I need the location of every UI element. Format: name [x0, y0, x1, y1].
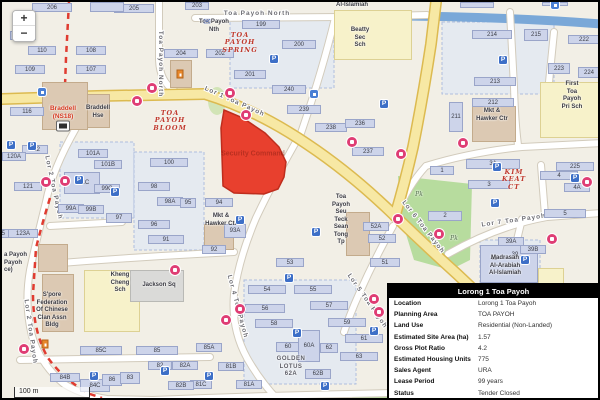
parking-icon[interactable]: P — [380, 100, 388, 108]
estate-label: KIM KEAT CT — [502, 169, 526, 191]
building-53: 53 — [276, 258, 304, 267]
row-label: Planning Area — [389, 311, 478, 318]
parking-icon[interactable]: P — [491, 199, 499, 207]
building-94: 94 — [205, 198, 233, 207]
info-panel-rows: LocationLorong 1 Toa PayohPlanning AreaT… — [389, 298, 598, 399]
bus-stop-icon[interactable] — [225, 88, 235, 98]
parking-icon[interactable]: P — [28, 142, 36, 150]
building-58: 58 — [255, 319, 293, 328]
building-52A: 52A — [363, 222, 389, 231]
building-212: 212 — [472, 98, 514, 107]
building-61: 61 — [345, 334, 383, 343]
building-100: 100 — [150, 158, 188, 167]
scale-bar: 100 m — [14, 387, 90, 398]
poi-marker-icon[interactable] — [310, 90, 318, 98]
poi-label: Al-Islamiah — [336, 2, 368, 10]
building-60: 60 — [276, 342, 300, 352]
building-236: 236 — [345, 119, 375, 128]
building-52: 52 — [368, 234, 396, 243]
building-1: 1 — [430, 166, 454, 175]
building-93A: 93A — [224, 224, 246, 238]
info-row: LocationLorong 1 Toa Payoh — [389, 298, 598, 309]
info-row: Estimated Housing Units775 — [389, 354, 598, 365]
building-98: 98 — [138, 182, 170, 191]
map-block-school — [540, 82, 600, 138]
map-block-school — [334, 10, 412, 60]
parking-icon[interactable]: P — [370, 327, 378, 335]
building-109: 109 — [15, 65, 45, 74]
row-label: Estimated Site Area (ha) — [389, 334, 478, 341]
building-240: 240 — [272, 85, 306, 94]
building-206: 206 — [32, 3, 72, 12]
parking-icon[interactable]: P — [293, 329, 301, 337]
row-label: Estimated Housing Units — [389, 356, 478, 363]
info-row: Gross Plot Ratio4.2 — [389, 343, 598, 354]
row-value: Lorong 1 Toa Payoh — [478, 300, 536, 307]
row-label: Lease Period — [389, 378, 478, 385]
row-value: Residential (Non-Landed) — [478, 322, 552, 329]
building-101A: 101A — [78, 149, 108, 158]
building-62: 62 — [320, 343, 338, 353]
building-82B: 82B — [168, 381, 194, 390]
poi-label: Pk — [415, 191, 423, 199]
parking-icon[interactable]: P — [499, 56, 507, 64]
row-value: 1.57 — [478, 334, 491, 341]
building-92: 92 — [202, 245, 226, 254]
building-110: 110 — [28, 46, 56, 55]
building-224: 224 — [578, 67, 600, 78]
map-canvas[interactable]: Toa Payoh NorthToa Payoh NorthLor 1 Toa … — [0, 0, 600, 400]
row-label: Location — [389, 300, 478, 307]
parking-icon[interactable]: P — [90, 372, 98, 380]
bus-stop-icon[interactable] — [235, 304, 245, 314]
building-120A: 120A — [2, 152, 26, 161]
building-51: 51 — [370, 258, 400, 267]
bus-stop-icon[interactable] — [547, 234, 557, 244]
bus-stop-icon[interactable] — [41, 177, 51, 187]
row-label: Gross Plot Ratio — [389, 345, 478, 352]
bus-stop-icon[interactable] — [241, 110, 251, 120]
parking-icon[interactable]: P — [521, 256, 529, 264]
building-204: 204 — [164, 49, 198, 58]
parking-icon[interactable]: P — [321, 382, 329, 390]
bus-stop-icon[interactable] — [19, 344, 29, 354]
building-97: 97 — [106, 213, 132, 223]
building-108: 108 — [76, 46, 106, 55]
info-panel-title: Lorong 1 Toa Payoh — [389, 285, 598, 298]
bus-stop-icon[interactable] — [396, 149, 406, 159]
building-123A: 123A — [8, 229, 38, 238]
parking-icon[interactable]: P — [270, 55, 278, 63]
building-199: 199 — [242, 20, 280, 29]
building-95: 95 — [180, 198, 196, 208]
building — [90, 2, 124, 12]
row-value: URA — [478, 367, 492, 374]
zoom-control: + − — [12, 10, 36, 42]
building-85: 85 — [136, 346, 178, 355]
row-label: Sales Agent — [389, 367, 478, 374]
building-59: 59 — [328, 318, 366, 327]
scale-label: 100 m — [19, 388, 38, 395]
building-39B: 39B — [520, 245, 546, 254]
building-91: 91 — [148, 235, 184, 244]
row-value: 4.2 — [478, 345, 487, 352]
building-84B: 84B — [50, 373, 80, 382]
building-56: 56 — [245, 304, 285, 313]
parking-icon[interactable]: P — [571, 174, 579, 182]
post-office-icon: ✉ — [203, 17, 211, 28]
row-value: 99 years — [478, 378, 503, 385]
row-value: Tender Closed — [478, 390, 520, 397]
info-row: StatusTender Closed — [389, 388, 598, 399]
map-block-civic — [346, 212, 370, 256]
building-99B: 99B — [78, 205, 104, 214]
building-200: 200 — [282, 40, 316, 49]
row-value: 775 — [478, 356, 489, 363]
bus-stop-icon[interactable] — [347, 137, 357, 147]
building-2: 2 — [428, 211, 462, 221]
bus-stop-icon[interactable] — [147, 83, 157, 93]
building-63: 63 — [340, 352, 378, 361]
info-row: Planning AreaTOA PAYOH — [389, 309, 598, 320]
building-214: 214 — [472, 30, 512, 39]
building-62B: 62B — [305, 369, 331, 379]
building-223: 223 — [548, 63, 570, 74]
building — [460, 2, 494, 8]
info-panel: Lorong 1 Toa Payoh LocationLorong 1 Toa … — [387, 283, 600, 400]
building-96: 96 — [138, 220, 170, 229]
map-block-civic — [472, 106, 516, 142]
poi-label: Pk — [450, 235, 458, 243]
mrt-station-icon[interactable] — [56, 121, 70, 132]
building-85C: 85C — [80, 346, 122, 355]
building-116: 116 — [10, 107, 44, 116]
info-row: Lease Period99 years — [389, 376, 598, 387]
building-82A: 82A — [172, 361, 198, 370]
building-55: 55 — [294, 285, 332, 294]
bus-stop-icon[interactable] — [434, 229, 444, 239]
zoom-out-button[interactable]: − — [13, 26, 35, 41]
parcel-label: Security Command — [221, 151, 285, 158]
parking-icon[interactable]: P — [161, 367, 169, 375]
building-121: 121 — [14, 182, 42, 191]
parking-icon[interactable]: P — [285, 274, 293, 282]
bus-stop-icon[interactable] — [458, 138, 468, 148]
temple-icon — [177, 70, 184, 79]
bus-stop-icon[interactable] — [374, 307, 384, 317]
building-81A: 81A — [236, 380, 262, 389]
poi-marker-icon[interactable] — [38, 88, 46, 96]
bus-stop-icon[interactable] — [60, 176, 70, 186]
parking-icon[interactable]: P — [205, 372, 213, 380]
building-211: 211 — [449, 102, 463, 132]
bus-stop-icon[interactable] — [582, 177, 592, 187]
building-125: 125 — [0, 229, 9, 238]
poi-marker-icon[interactable] — [551, 1, 559, 9]
info-row: Sales AgentURA — [389, 365, 598, 376]
building-57: 57 — [310, 301, 348, 310]
parking-icon[interactable]: P — [75, 176, 83, 184]
map-block-civic — [38, 244, 68, 272]
info-row: Estimated Site Area (ha)1.57 — [389, 332, 598, 343]
estate-label: TOA PAYOH BLOOM — [153, 110, 187, 132]
row-label: Status — [389, 390, 478, 397]
building-203: 203 — [185, 2, 209, 10]
parking-icon[interactable]: P — [312, 228, 320, 236]
temple-icon — [42, 340, 49, 349]
bus-stop-icon[interactable] — [369, 294, 379, 304]
bus-stop-icon[interactable] — [393, 214, 403, 224]
building-54: 54 — [248, 285, 286, 294]
parking-icon[interactable]: P — [236, 216, 244, 224]
parking-icon[interactable]: P — [7, 141, 15, 149]
building-225: 225 — [556, 162, 594, 171]
estate-label: TOA PAYOH SPRING — [222, 32, 258, 54]
building-85A: 85A — [196, 343, 222, 352]
building-86: 86 — [102, 374, 122, 386]
zoom-in-button[interactable]: + — [13, 11, 35, 26]
bus-stop-icon[interactable] — [221, 315, 231, 325]
row-label: Land Use — [389, 322, 478, 329]
info-row: Land UseResidential (Non-Landed) — [389, 320, 598, 331]
building-215: 215 — [524, 29, 548, 41]
building-238: 238 — [315, 123, 347, 132]
parking-icon[interactable]: P — [111, 188, 119, 196]
building-5: 5 — [544, 209, 586, 218]
parking-icon[interactable]: P — [493, 163, 501, 171]
bus-stop-icon[interactable] — [170, 265, 180, 275]
building-213: 213 — [474, 77, 516, 86]
building-107: 107 — [76, 65, 106, 74]
building-60A: 60A — [298, 330, 320, 362]
building-201: 201 — [234, 70, 266, 79]
bus-stop-icon[interactable] — [132, 96, 142, 106]
building-40: 40 — [486, 254, 502, 264]
building-83: 83 — [120, 372, 140, 384]
building-239: 239 — [287, 105, 321, 114]
building-237: 237 — [352, 147, 384, 156]
building-222: 222 — [568, 35, 600, 44]
row-value: TOA PAYOH — [478, 311, 514, 318]
building-101B: 101B — [94, 160, 122, 169]
map-block-civic — [42, 274, 74, 332]
poi-label: a Payoh Payoh ce) — [4, 252, 27, 275]
building-81B: 81B — [218, 362, 244, 371]
